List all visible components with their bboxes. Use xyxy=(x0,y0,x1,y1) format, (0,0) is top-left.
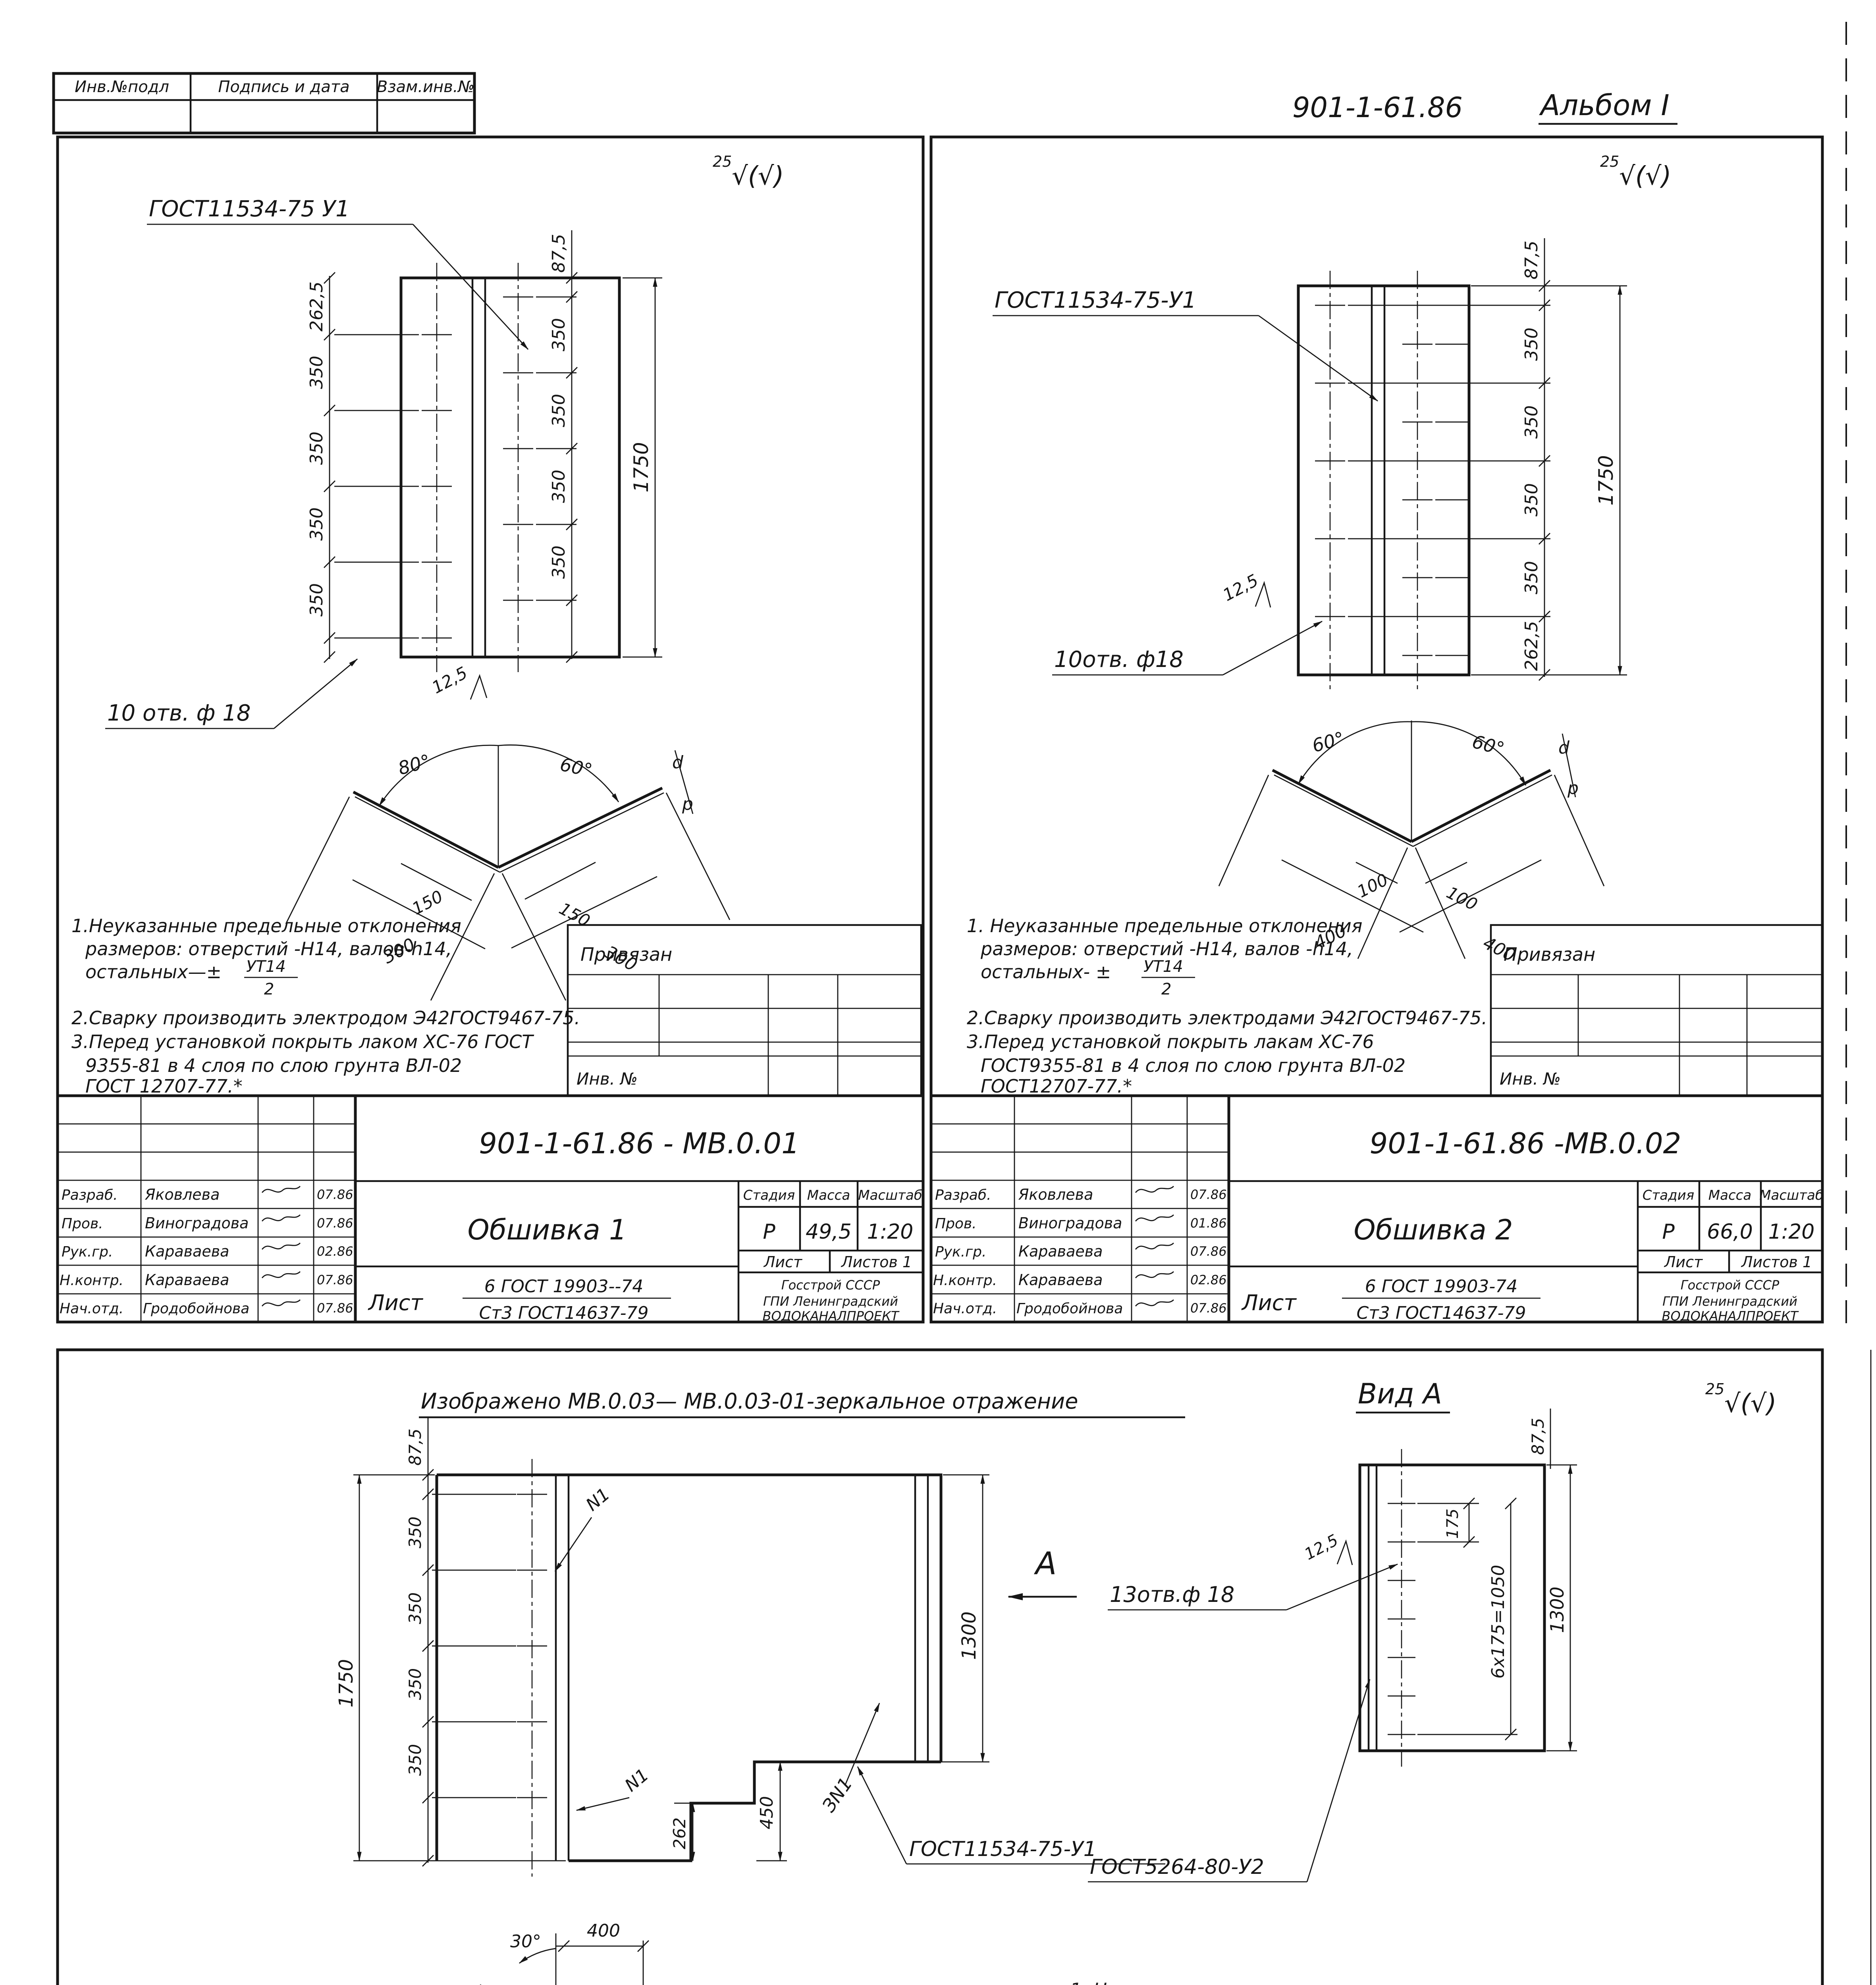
gost-label: ГОСТ5264-80-У2 xyxy=(1090,1855,1264,1879)
corner-stamp-col: Взам.инв.№ xyxy=(377,78,474,96)
dim-label: 450 xyxy=(757,1796,777,1829)
signature xyxy=(1136,1186,1174,1306)
binding-box: Привязан Инв. № xyxy=(568,925,921,1096)
roughness-value: 25 xyxy=(1600,153,1619,170)
person-name: Караваева xyxy=(145,1271,229,1289)
weld-mark: N1 xyxy=(621,1765,652,1796)
sheet-3: Изображено МВ.0.03— МВ.0.03-01-зеркально… xyxy=(335,1378,1822,1985)
holes-label: 10 отв. ф 18 xyxy=(107,700,251,726)
inventory-label: Инв. № xyxy=(1500,1069,1561,1089)
org-line: Госстрой СССР xyxy=(781,1278,880,1293)
thickness-label: p xyxy=(682,794,693,814)
dim-label: 1300 xyxy=(958,1611,980,1660)
corner-stamp: Инв.№подл Подпись и дата Взам.инв.№ xyxy=(54,73,474,133)
roughness-mark: 25 √(√) xyxy=(1705,1380,1777,1418)
roughness-symbol-icon: √(√) xyxy=(1724,1389,1777,1418)
thickness-label: d xyxy=(1558,738,1570,758)
inventory-label: Инв. № xyxy=(576,1069,638,1089)
date: 02.86 xyxy=(1190,1272,1227,1287)
surface-finish-flag: 12,5 xyxy=(429,663,471,698)
scale-value: 1:20 xyxy=(1768,1220,1815,1244)
role-label: Разраб. xyxy=(935,1187,991,1203)
binding-label: Привязан xyxy=(580,944,672,965)
weld-gost-label: ГОСТ11534-75 У1 xyxy=(147,196,528,349)
titleblock-doc-number: 901-1-61.86 -МВ.0.02 xyxy=(1370,1127,1681,1160)
material-sheet-label: Лист xyxy=(1241,1290,1297,1315)
stage-header: Стадия xyxy=(1643,1187,1694,1203)
date: 07.86 xyxy=(1190,1244,1227,1259)
dim-label: 350 xyxy=(307,583,327,617)
role-label: Разраб. xyxy=(62,1187,118,1203)
note-line: размеров: отверстий -Н14, валов -h14, xyxy=(980,938,1353,960)
roughness-symbol-icon: √(√) xyxy=(732,162,784,191)
dim-label: 262 xyxy=(670,1817,689,1849)
date: 07.86 xyxy=(317,1187,353,1202)
note-line: 2.Сварку производить электродом Э42ГОСТ9… xyxy=(71,1007,580,1029)
titleblock-part-name: Обшивка 2 xyxy=(1353,1214,1513,1246)
dim-label: 1300 xyxy=(1546,1586,1568,1633)
drawing-canvas: Инв.№подл Подпись и дата Взам.инв.№ 901-… xyxy=(0,0,1876,1985)
person-name: Караваева xyxy=(1018,1243,1103,1260)
hole-marks xyxy=(422,297,533,638)
stage-value: Р xyxy=(763,1220,775,1244)
dim-label: 350 xyxy=(549,470,569,503)
note-line: 1.Неуказанные предельные отклонения xyxy=(71,915,461,937)
note-line: размеров: отверстий -Н14, валов-h14, xyxy=(85,938,452,960)
note-fraction-num: УТ14 xyxy=(246,958,286,976)
dim-label: 350 xyxy=(307,432,327,465)
holes-label: 13отв.ф 18 xyxy=(1110,1582,1234,1607)
stage-value: Р xyxy=(1662,1220,1675,1244)
dim-label: 150 xyxy=(556,899,593,931)
stage-header: Стадия xyxy=(743,1187,795,1203)
dim-label: 100 xyxy=(1443,883,1481,914)
dim-label: 350 xyxy=(1521,328,1542,361)
roughness-symbol-icon: √(√) xyxy=(1619,162,1672,191)
dim-label: 350 xyxy=(307,507,327,541)
dim-label: 150 xyxy=(409,887,446,919)
role-label: Нач.отд. xyxy=(60,1301,123,1317)
note-line: остальных—± xyxy=(85,961,222,983)
org-line: ГПИ Ленинградский xyxy=(1662,1294,1797,1309)
roughness-value: 25 xyxy=(1705,1380,1724,1398)
note-line: 2.Сварку производить электродами Э42ГОСТ… xyxy=(967,1007,1487,1029)
dim-label: 350 xyxy=(1521,561,1542,594)
gost-label: ГОСТ11534-75-У1 xyxy=(995,287,1196,313)
person-name: Караваева xyxy=(1018,1271,1103,1289)
view-direction-label: А xyxy=(1033,1546,1057,1582)
dim-label: 350 xyxy=(405,1592,425,1624)
date: 07.86 xyxy=(317,1301,353,1316)
surface-finish-flag: 12,5 xyxy=(1220,570,1262,605)
profile-view: 30° 400 100 100 400 d p 30° 30° 1700 50 … xyxy=(412,1921,1019,1985)
dim-label: 350 xyxy=(405,1744,425,1776)
surface-finish-flag: 12,5 xyxy=(1301,1531,1341,1563)
person-name: Яковлева xyxy=(145,1186,220,1203)
dim-label: 350 xyxy=(307,356,327,389)
person-name: Яковлева xyxy=(1018,1186,1093,1203)
corner-stamp-col: Подпись и дата xyxy=(218,78,349,96)
dim-label: 400 xyxy=(587,1921,620,1941)
note-line: ГОСТ12707-77.* xyxy=(981,1075,1132,1097)
weld-mark: N1 xyxy=(582,1484,613,1515)
dim-label: 87,5 xyxy=(1528,1418,1548,1455)
titleblock-part-name: Обшивка 1 xyxy=(467,1214,627,1246)
dim-label-overall: 1750 xyxy=(1595,455,1618,505)
thickness-label: p xyxy=(1567,778,1579,798)
date: 07.86 xyxy=(1190,1301,1227,1316)
role-label: Пров. xyxy=(62,1216,103,1232)
dim-label: 87,5 xyxy=(405,1428,425,1466)
title-block: 901-1-61.86 - МВ.0.01 Обшивка 1 Стадия М… xyxy=(58,1096,923,1324)
date: 02.86 xyxy=(317,1244,353,1259)
roughness-mark: 25 √(√) xyxy=(713,153,784,191)
scale-header: Масштаб xyxy=(1759,1187,1824,1203)
view-a: 87,5 175 6х175=1050 1300 12,5 13отв.ф 18… xyxy=(1088,1409,1577,1882)
role-label: Н.контр. xyxy=(933,1272,997,1289)
roughness-mark: 25 √(√) xyxy=(1600,153,1672,191)
date: 07.86 xyxy=(317,1272,353,1287)
dim-label: 350 xyxy=(1521,483,1542,516)
mass-value: 66,0 xyxy=(1707,1220,1753,1244)
note-line: 9355-81 в 4 слоя по слою грунта ВЛ-02 xyxy=(85,1055,462,1076)
note-line: 3.Перед установкой покрыть лакам ХС-76 xyxy=(967,1031,1374,1052)
mass-header: Масса xyxy=(1708,1187,1751,1203)
header-doc-number: 901-1-61.86 xyxy=(1292,91,1463,124)
person-name: Караваева xyxy=(145,1243,229,1260)
header-album: Альбом I xyxy=(1539,89,1670,122)
material-bottom: Ст3 ГОСТ14637-79 xyxy=(479,1303,649,1323)
note-fraction-num: УТ14 xyxy=(1143,958,1183,976)
gost-label: ГОСТ11534-75-У1 xyxy=(909,1837,1097,1861)
sheet3-header: Изображено МВ.0.03— МВ.0.03-01-зеркально… xyxy=(421,1389,1078,1414)
angle-label: 80° xyxy=(396,750,433,779)
mass-value: 49,5 xyxy=(806,1220,852,1244)
person-name: Виноградова xyxy=(1018,1214,1122,1232)
note-fraction-den: 2 xyxy=(1161,980,1171,998)
page-header: 901-1-61.86 Альбом I xyxy=(1292,89,1677,124)
dim-label: 87,5 xyxy=(549,234,569,273)
notes-block: 1. Неуказанные предельные отклонения раз… xyxy=(1070,1979,1746,1985)
signature xyxy=(262,1186,300,1306)
role-label: Рук.гр. xyxy=(935,1244,986,1260)
angle-label: 30° xyxy=(510,1931,541,1952)
notes-block: 1. Неуказанные предельные отклонения раз… xyxy=(967,915,1487,1097)
sheet-label: Лист xyxy=(1664,1253,1703,1271)
note-line: ГОСТ 12707-77.* xyxy=(85,1075,243,1097)
angle-label: 60° xyxy=(558,754,594,781)
sheets-label: Листов 1 xyxy=(841,1253,912,1271)
org-line: ГПИ Ленинградский xyxy=(763,1294,898,1309)
note-line: 1. Неуказанные предельные отклонения xyxy=(967,915,1362,937)
material-bottom: Ст3 ГОСТ14637-79 xyxy=(1357,1303,1526,1323)
scale-value: 1:20 xyxy=(867,1220,914,1244)
weld-gost-label: ГОСТ11534-75-У1 xyxy=(993,287,1378,401)
title-block: 901-1-61.86 -МВ.0.02 Обшивка 2 Стадия Ма… xyxy=(931,1096,1824,1324)
dim-label-overall: 1750 xyxy=(335,1659,357,1707)
holes-label: 10отв. ф18 xyxy=(1054,647,1184,673)
notes-block: 1.Неуказанные предельные отклонения разм… xyxy=(71,915,580,1097)
role-label: Рук.гр. xyxy=(62,1244,113,1260)
material-top: 6 ГОСТ 19903-74 xyxy=(1365,1276,1518,1297)
role-label: Пров. xyxy=(935,1216,977,1232)
person-name: Виноградова xyxy=(145,1214,249,1232)
org-line: ВОДОКАНАЛПРОЕКТ xyxy=(1662,1309,1799,1324)
date: 07.86 xyxy=(317,1216,353,1231)
note-line: остальных- ± xyxy=(981,961,1111,983)
dim-label: 262,5 xyxy=(307,281,327,331)
view-a-title: Вид А xyxy=(1358,1378,1442,1410)
dim-label: 350 xyxy=(1521,405,1542,439)
sheet-2: 25 √(√) ГОСТ11534-75-У1 87,5 350 350 350… xyxy=(931,153,1824,1324)
dim-label: 262,5 xyxy=(1521,621,1542,671)
corner-stamp-col: Инв.№подл xyxy=(75,78,169,96)
gost-label: ГОСТ11534-75 У1 xyxy=(149,196,350,222)
material-sheet-label: Лист xyxy=(368,1290,423,1315)
weld-mark: ЗN1 xyxy=(818,1773,857,1816)
dim-label: 350 xyxy=(549,545,569,579)
centerline xyxy=(1330,271,1417,690)
binding-label: Привязан xyxy=(1504,944,1595,965)
dim-label: 175 xyxy=(1444,1509,1462,1539)
role-label: Н.контр. xyxy=(60,1272,123,1289)
binding-box: Привязан Инв. № xyxy=(1491,925,1822,1096)
org-line: Госстрой СССР xyxy=(1681,1278,1780,1293)
angle-label: 60° xyxy=(1470,730,1507,759)
date: 01.86 xyxy=(1190,1216,1227,1231)
dim-label: 350 xyxy=(405,1517,425,1548)
sheet-label: Лист xyxy=(763,1253,803,1271)
angle-label: 60° xyxy=(1310,727,1347,756)
note-line: 1. Неуказанные предельные отклонения раз… xyxy=(1070,1979,1569,1985)
note-line: ГОСТ9355-81 в 4 слоя по слою грунта ВЛ-0… xyxy=(981,1055,1406,1076)
dim-label-overall: 1750 xyxy=(630,442,653,492)
main-view: 87,5 350 350 350 350 1750 1300 262 450 N… xyxy=(335,1418,1165,1877)
plate-flat-view: 262,5 350 350 350 350 87,5 350 350 350 3… xyxy=(105,230,662,728)
roughness-value: 25 xyxy=(713,153,732,170)
note-line: 3.Перед установкой покрыть лаком ХС-76 Г… xyxy=(71,1031,534,1052)
person-name: Гродобойнова xyxy=(143,1301,249,1317)
sheets-label: Листов 1 xyxy=(1741,1253,1812,1271)
sheet-1: 25 √(√) ГОСТ11534-75 У1 262,5 350 350 35… xyxy=(58,153,923,1324)
dim-label: 6х175=1050 xyxy=(1488,1565,1508,1679)
role-label: Нач.отд. xyxy=(933,1301,997,1317)
person-name: Гродобойнова xyxy=(1016,1301,1123,1317)
org-line: ВОДОКАНАЛПРОЕКТ xyxy=(763,1309,900,1324)
note-fraction-den: 2 xyxy=(264,980,274,998)
dim-label: 350 xyxy=(549,318,569,351)
material-top: 6 ГОСТ 19903--74 xyxy=(484,1276,643,1297)
centerline xyxy=(437,263,518,672)
blueprint-page: Инв.№подл Подпись и дата Взам.инв.№ 901-… xyxy=(0,0,1876,1985)
mass-header: Масса xyxy=(807,1187,850,1203)
dim-label: 87,5 xyxy=(1521,241,1542,279)
scale-header: Масштаб xyxy=(858,1187,922,1203)
dim-label: 350 xyxy=(549,394,569,427)
date: 07.86 xyxy=(1190,1187,1227,1202)
thickness-label: d xyxy=(672,752,684,773)
titleblock-doc-number: 901-1-61.86 - МВ.0.01 xyxy=(479,1127,800,1160)
dim-label: 350 xyxy=(405,1668,425,1700)
